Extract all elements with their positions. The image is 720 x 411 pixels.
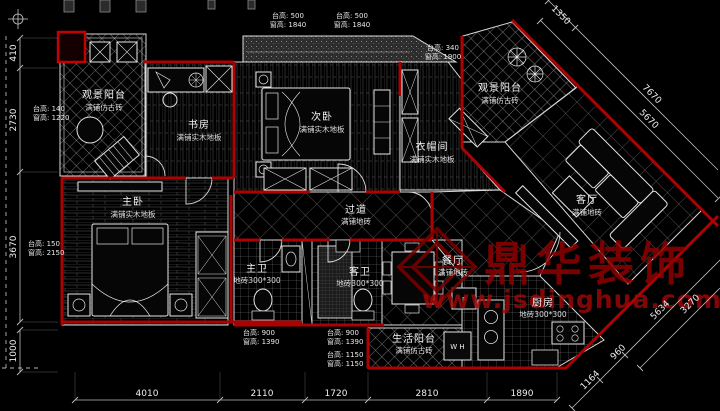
room-label-bath-guest: 客卫 [349,265,371,278]
room-floor-study: 满铺实木地板 [177,132,222,142]
floor-plan-canvas: F W H [0,0,720,411]
toilet-icon [354,289,372,311]
compass-icon [189,73,203,87]
stove-icon [552,322,584,344]
room-floor-balcony-tl: 满铺仿古砖 [85,102,123,112]
dim-left-410: 410 [9,44,19,61]
round-table-icon [77,117,103,143]
slab-columns [64,0,255,12]
room-label-balcony-tr: 观景阳台 [478,81,522,94]
window-note: 台高: 340 [427,43,459,52]
svg-text:窗高: 1390: 窗高: 1390 [243,337,279,346]
svg-text:窗高: 1900: 窗高: 1900 [425,52,461,61]
vanity-icon [282,246,300,272]
dim-diag-5670: 5670 [637,108,660,131]
room-label-bath-master: 主卫 [246,263,268,275]
watermark-brand: 鼎华装饰 [484,237,692,291]
tv-cabinet-icon [78,182,162,191]
dim-left-2730: 2730 [9,108,19,131]
room-label-cloakroom: 衣帽间 [416,140,449,153]
dim-diag-7670: 7670 [640,83,663,106]
dim-bottom-4010: 4010 [136,389,159,399]
nightstand-icon [68,294,90,316]
svg-text:窗高: 1840: 窗高: 1840 [334,20,370,29]
dim-bottom-2810: 2810 [416,389,439,399]
nightstand-icon [170,294,192,316]
dim-bottom-1720: 1720 [325,389,348,399]
room-label-study: 书房 [188,118,210,131]
room-corridor [234,192,432,240]
window-note: 台高: 140 [33,104,65,113]
dim-bottom-1890: 1890 [511,389,534,399]
svg-text:窗高: 1840: 窗高: 1840 [270,20,306,29]
window-note: 台高: 150 [28,239,60,248]
window-note: 台高: 1150 [327,350,363,359]
room-floor-living: 满铺地砖 [572,207,602,217]
room-floor-kitchen: 地砖300*300 [519,309,567,319]
svg-text:窗高: 1390: 窗高: 1390 [327,337,363,346]
dim-left-3670: 3670 [9,235,19,258]
window-note: 台高: 500 [272,11,304,20]
window-note: 台高: 500 [336,11,368,20]
window-note: 台高: 900 [327,328,359,337]
room-floor-balcony-life: 满铺仿古砖 [395,345,433,355]
washer-label: W H [450,343,464,351]
room-floor-bedroom2: 满铺实木地板 [300,124,345,134]
column-marker [58,32,85,62]
dim-diag-960: 960 [609,343,628,362]
dim-left-1000: 1000 [9,339,19,362]
room-label-living: 客厅 [576,193,598,206]
room-floor-bath-guest: 地砖300*300 [336,278,384,288]
room-label-balcony-tl: 观景阳台 [82,88,126,101]
window-note: 台高: 900 [243,328,275,337]
svg-text:窗高: 2150: 窗高: 2150 [28,248,64,257]
axis-marker-icon [8,9,28,29]
room-label-corridor: 过道 [345,203,367,216]
room-label-balcony-life: 生活阳台 [392,332,436,345]
room-label-kitchen: 厨房 [532,296,554,309]
room-floor-master: 满铺实木地板 [111,209,156,219]
svg-text:窗高: 1220: 窗高: 1220 [33,113,69,122]
dim-diag-1164: 1164 [579,369,602,392]
room-label-bedroom2: 次卧 [311,110,333,123]
dim-diag-1350: 1350 [549,4,572,27]
room-floor-bath-master: 地砖300*300 [233,275,281,285]
room-label-dining: 餐厅 [442,254,464,267]
dim-bottom-2110: 2110 [251,389,274,399]
watermark-url: www.jsdinghua.com [422,285,720,314]
floor-plan-screenshot: F W H [0,0,720,411]
svg-text:窗高: 1150: 窗高: 1150 [327,359,363,368]
room-floor-dining: 满铺地砖 [438,267,468,277]
wardrobe-icon [196,232,228,318]
room-floor-corridor: 满铺地砖 [341,216,371,226]
room-label-master: 主卧 [122,195,144,208]
room-floor-balcony-tr: 满铺仿古砖 [481,95,519,105]
toilet-icon [254,289,272,311]
room-floor-cloakroom: 满铺实木地板 [410,154,455,164]
